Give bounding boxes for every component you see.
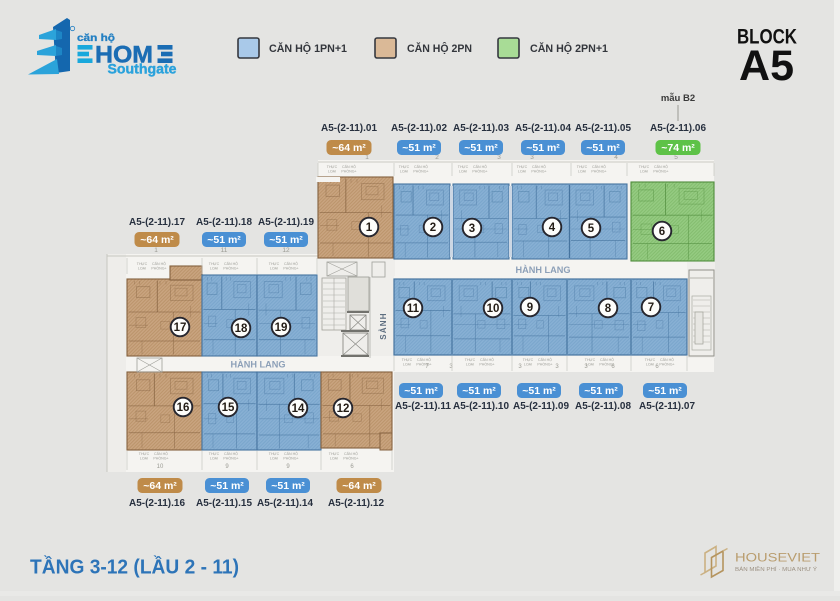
svg-text:~51 m²: ~51 m² — [402, 142, 436, 154]
svg-text:PHÒNG+: PHÒNG+ — [223, 456, 238, 461]
svg-text:18: 18 — [235, 323, 248, 335]
svg-text:CĂN HỘ: CĂN HỘ — [224, 451, 238, 456]
svg-text:~51 m²: ~51 m² — [526, 142, 560, 154]
svg-text:THỰC: THỰC — [327, 165, 338, 169]
svg-text:LOẠI: LOẠI — [270, 457, 278, 461]
svg-text:LOẠI: LOẠI — [270, 267, 278, 271]
svg-text:15: 15 — [222, 402, 235, 414]
svg-text:~51 m²: ~51 m² — [464, 142, 498, 154]
svg-text:THỰC: THỰC — [585, 358, 596, 362]
svg-text:THỰC: THỰC — [269, 262, 280, 266]
svg-text:3: 3 — [497, 154, 501, 161]
svg-text:CĂN HỘ: CĂN HỘ — [344, 451, 358, 456]
svg-text:CĂN HỘ: CĂN HỘ — [592, 164, 606, 169]
svg-text:PHÒNG+: PHÒNG+ — [479, 362, 494, 367]
svg-text:~64 m²: ~64 m² — [140, 234, 174, 246]
svg-text:CĂN HỘ 2PN+1: CĂN HỘ 2PN+1 — [530, 42, 608, 55]
svg-text:mẫu B2: mẫu B2 — [661, 93, 695, 104]
svg-text:CĂN HỘ: CĂN HỘ — [342, 164, 356, 169]
svg-text:~51 m²: ~51 m² — [207, 234, 241, 246]
svg-text:SẢNH: SẢNH — [379, 312, 388, 339]
svg-text:~51 m²: ~51 m² — [522, 385, 556, 397]
svg-text:A5-(2-11).19: A5-(2-11).19 — [258, 216, 314, 228]
svg-text:THỰC: THỰC — [645, 358, 656, 362]
svg-text:LOẠI: LOẠI — [330, 457, 338, 461]
svg-text:PHÒNG+: PHÒNG+ — [151, 266, 166, 271]
svg-text:A5-(2-11).11: A5-(2-11).11 — [395, 400, 451, 412]
svg-text:PHÒNG+: PHÒNG+ — [283, 266, 298, 271]
svg-text:3: 3 — [469, 223, 475, 235]
svg-text:HÀNH LANG: HÀNH LANG — [231, 360, 286, 370]
svg-text:CĂN HỘ: CĂN HỘ — [660, 357, 674, 362]
svg-text:6: 6 — [659, 226, 665, 238]
svg-text:LOẠI: LOẠI — [578, 170, 586, 174]
svg-text:A5-(2-11).05: A5-(2-11).05 — [575, 122, 631, 134]
svg-text:12: 12 — [282, 247, 290, 254]
svg-text:8: 8 — [605, 303, 612, 315]
svg-text:A5-(2-11).18: A5-(2-11).18 — [196, 216, 252, 228]
svg-text:~64 m²: ~64 m² — [342, 480, 376, 492]
svg-text:10: 10 — [157, 464, 164, 470]
svg-text:CĂN HỘ: CĂN HỘ — [532, 164, 546, 169]
svg-text:A5-(2-11).09: A5-(2-11).09 — [513, 400, 569, 412]
svg-text:A5: A5 — [739, 42, 794, 90]
svg-text:~51 m²: ~51 m² — [586, 142, 620, 154]
svg-text:11: 11 — [407, 303, 420, 315]
svg-text:~64 m²: ~64 m² — [143, 480, 177, 492]
svg-text:CĂN HỘ 2PN: CĂN HỘ 2PN — [407, 42, 472, 55]
svg-text:PHÒNG+: PHÒNG+ — [653, 169, 668, 174]
svg-text:~51 m²: ~51 m² — [648, 385, 682, 397]
svg-text:PHÒNG+: PHÒNG+ — [472, 169, 487, 174]
svg-text:LOẠI: LOẠI — [140, 457, 148, 461]
svg-text:PHÒNG+: PHÒNG+ — [223, 266, 238, 271]
svg-text:TẦNG 3-12 (LẦU 2 - 11): TẦNG 3-12 (LẦU 2 - 11) — [30, 556, 239, 579]
svg-text:19: 19 — [275, 322, 288, 334]
svg-text:A5-(2-11).01: A5-(2-11).01 — [321, 122, 377, 134]
svg-text:LOẠI: LOẠI — [524, 363, 532, 367]
svg-text:CĂN HỘ: CĂN HỘ — [473, 164, 487, 169]
svg-text:LOẠI: LOẠI — [403, 363, 411, 367]
svg-text:THỰC: THỰC — [465, 358, 476, 362]
svg-text:THỰC: THỰC — [209, 452, 220, 456]
svg-text:11: 11 — [221, 247, 228, 254]
svg-text:1: 1 — [366, 222, 373, 234]
svg-text:A5-(2-11).14: A5-(2-11).14 — [257, 497, 313, 509]
svg-text:PHÒNG+: PHÒNG+ — [416, 362, 431, 367]
svg-text:1: 1 — [365, 154, 369, 161]
svg-text:10: 10 — [487, 303, 500, 315]
svg-text:CĂN HỘ: CĂN HỘ — [284, 261, 298, 266]
svg-text:A5-(2-11).12: A5-(2-11).12 — [328, 497, 384, 509]
svg-text:A5-(2-11).02: A5-(2-11).02 — [391, 122, 447, 134]
svg-text:LOẠI: LOẠI — [138, 267, 146, 271]
svg-text:CĂN HỘ: CĂN HỘ — [654, 164, 668, 169]
svg-text:PHÒNG+: PHÒNG+ — [659, 362, 674, 367]
svg-text:PHÒNG+: PHÒNG+ — [153, 456, 168, 461]
svg-text:CĂN HỘ: CĂN HỘ — [414, 164, 428, 169]
svg-text:A5-(2-11).17: A5-(2-11).17 — [129, 216, 185, 228]
svg-text:THỰC: THỰC — [329, 452, 340, 456]
svg-text:PHÒNG+: PHÒNG+ — [283, 456, 298, 461]
svg-text:A5-(2-11).04: A5-(2-11).04 — [515, 122, 571, 134]
svg-text:~74 m²: ~74 m² — [661, 142, 695, 154]
svg-text:~64 m²: ~64 m² — [332, 142, 366, 154]
svg-text:~51 m²: ~51 m² — [462, 385, 496, 397]
svg-text:THỰC: THỰC — [577, 165, 588, 169]
svg-text:LOẠI: LOẠI — [210, 267, 218, 271]
svg-text:A5-(2-11).15: A5-(2-11).15 — [196, 497, 252, 509]
svg-text:~51 m²: ~51 m² — [584, 385, 618, 397]
svg-text:~51 m²: ~51 m² — [269, 234, 303, 246]
svg-text:A5-(2-11).08: A5-(2-11).08 — [575, 400, 631, 412]
svg-text:9: 9 — [527, 302, 533, 314]
svg-text:LOẠI: LOẠI — [459, 170, 467, 174]
svg-text:A5-(2-11).06: A5-(2-11).06 — [650, 122, 706, 134]
svg-text:CĂN HỘ 1PN+1: CĂN HỘ 1PN+1 — [269, 42, 347, 55]
svg-text:3: 3 — [530, 154, 534, 161]
svg-text:CĂN HỘ: CĂN HỘ — [284, 451, 298, 456]
svg-text:A5-(2-11).10: A5-(2-11).10 — [453, 400, 509, 412]
svg-text:LOẠI: LOẠI — [210, 457, 218, 461]
svg-text:LOẠI: LOẠI — [466, 363, 474, 367]
svg-text:5: 5 — [588, 223, 595, 235]
svg-text:HÀNH LANG: HÀNH LANG — [516, 265, 571, 275]
svg-text:CĂN HỘ: CĂN HỘ — [480, 357, 494, 362]
svg-text:THỰC: THỰC — [458, 165, 469, 169]
svg-text:16: 16 — [177, 402, 190, 414]
svg-text:THỰC: THỰC — [517, 165, 528, 169]
svg-text:PHÒNG+: PHÒNG+ — [413, 169, 428, 174]
svg-text:1: 1 — [154, 247, 158, 254]
svg-text:7: 7 — [648, 302, 654, 314]
svg-text:A5-(2-11).03: A5-(2-11).03 — [453, 122, 509, 134]
svg-text:4: 4 — [549, 222, 556, 234]
svg-text:PHÒNG+: PHÒNG+ — [343, 456, 358, 461]
svg-text:CĂN HỘ: CĂN HỘ — [538, 357, 552, 362]
svg-text:2: 2 — [435, 154, 439, 161]
svg-text:LOẠI: LOẠI — [518, 170, 526, 174]
svg-text:CĂN HỘ: CĂN HỘ — [417, 357, 431, 362]
svg-text:Southgate: Southgate — [108, 62, 178, 77]
svg-text:THỰC: THỰC — [269, 452, 280, 456]
svg-text:LOẠI: LOẠI — [400, 170, 408, 174]
svg-text:17: 17 — [174, 322, 187, 334]
svg-text:4: 4 — [614, 154, 618, 161]
svg-text:THỰC: THỰC — [402, 358, 413, 362]
svg-text:LOẠI: LOẠI — [328, 170, 336, 174]
svg-text:BÁN MIỀN PHÍ · MUA NHƯ Ý: BÁN MIỀN PHÍ · MUA NHƯ Ý — [735, 566, 818, 573]
svg-text:2: 2 — [430, 222, 436, 234]
svg-text:THỰC: THỰC — [139, 452, 150, 456]
svg-text:~51 m²: ~51 m² — [210, 480, 244, 492]
svg-text:THỰC: THỰC — [137, 262, 148, 266]
svg-text:HOUSEVIET: HOUSEVIET — [735, 553, 820, 565]
svg-text:PHÒNG+: PHÒNG+ — [341, 169, 356, 174]
svg-text:LOẠI: LOẠI — [640, 170, 648, 174]
svg-text:A5-(2-11).07: A5-(2-11).07 — [639, 400, 695, 412]
svg-text:PHÒNG+: PHÒNG+ — [591, 169, 606, 174]
svg-text:12: 12 — [337, 403, 350, 415]
svg-text:A5-(2-11).16: A5-(2-11).16 — [129, 497, 185, 509]
svg-text:PHÒNG+: PHÒNG+ — [531, 169, 546, 174]
svg-text:5: 5 — [674, 154, 678, 161]
svg-text:PHÒNG+: PHÒNG+ — [537, 362, 552, 367]
svg-text:~51 m²: ~51 m² — [404, 385, 438, 397]
svg-text:CĂN HỘ: CĂN HỘ — [600, 357, 614, 362]
svg-text:CĂN HỘ: CĂN HỘ — [224, 261, 238, 266]
svg-text:THỰC: THỰC — [399, 165, 410, 169]
svg-text:14: 14 — [292, 403, 305, 415]
svg-text:THỰC: THỰC — [523, 358, 534, 362]
svg-text:CĂN HỘ: CĂN HỘ — [154, 451, 168, 456]
svg-text:LOẠI: LOẠI — [646, 363, 654, 367]
svg-text:CĂN HỘ: CĂN HỘ — [152, 261, 166, 266]
svg-text:~51 m²: ~51 m² — [271, 480, 305, 492]
svg-text:THỰC: THỰC — [209, 262, 220, 266]
svg-text:THỰC: THỰC — [639, 165, 650, 169]
